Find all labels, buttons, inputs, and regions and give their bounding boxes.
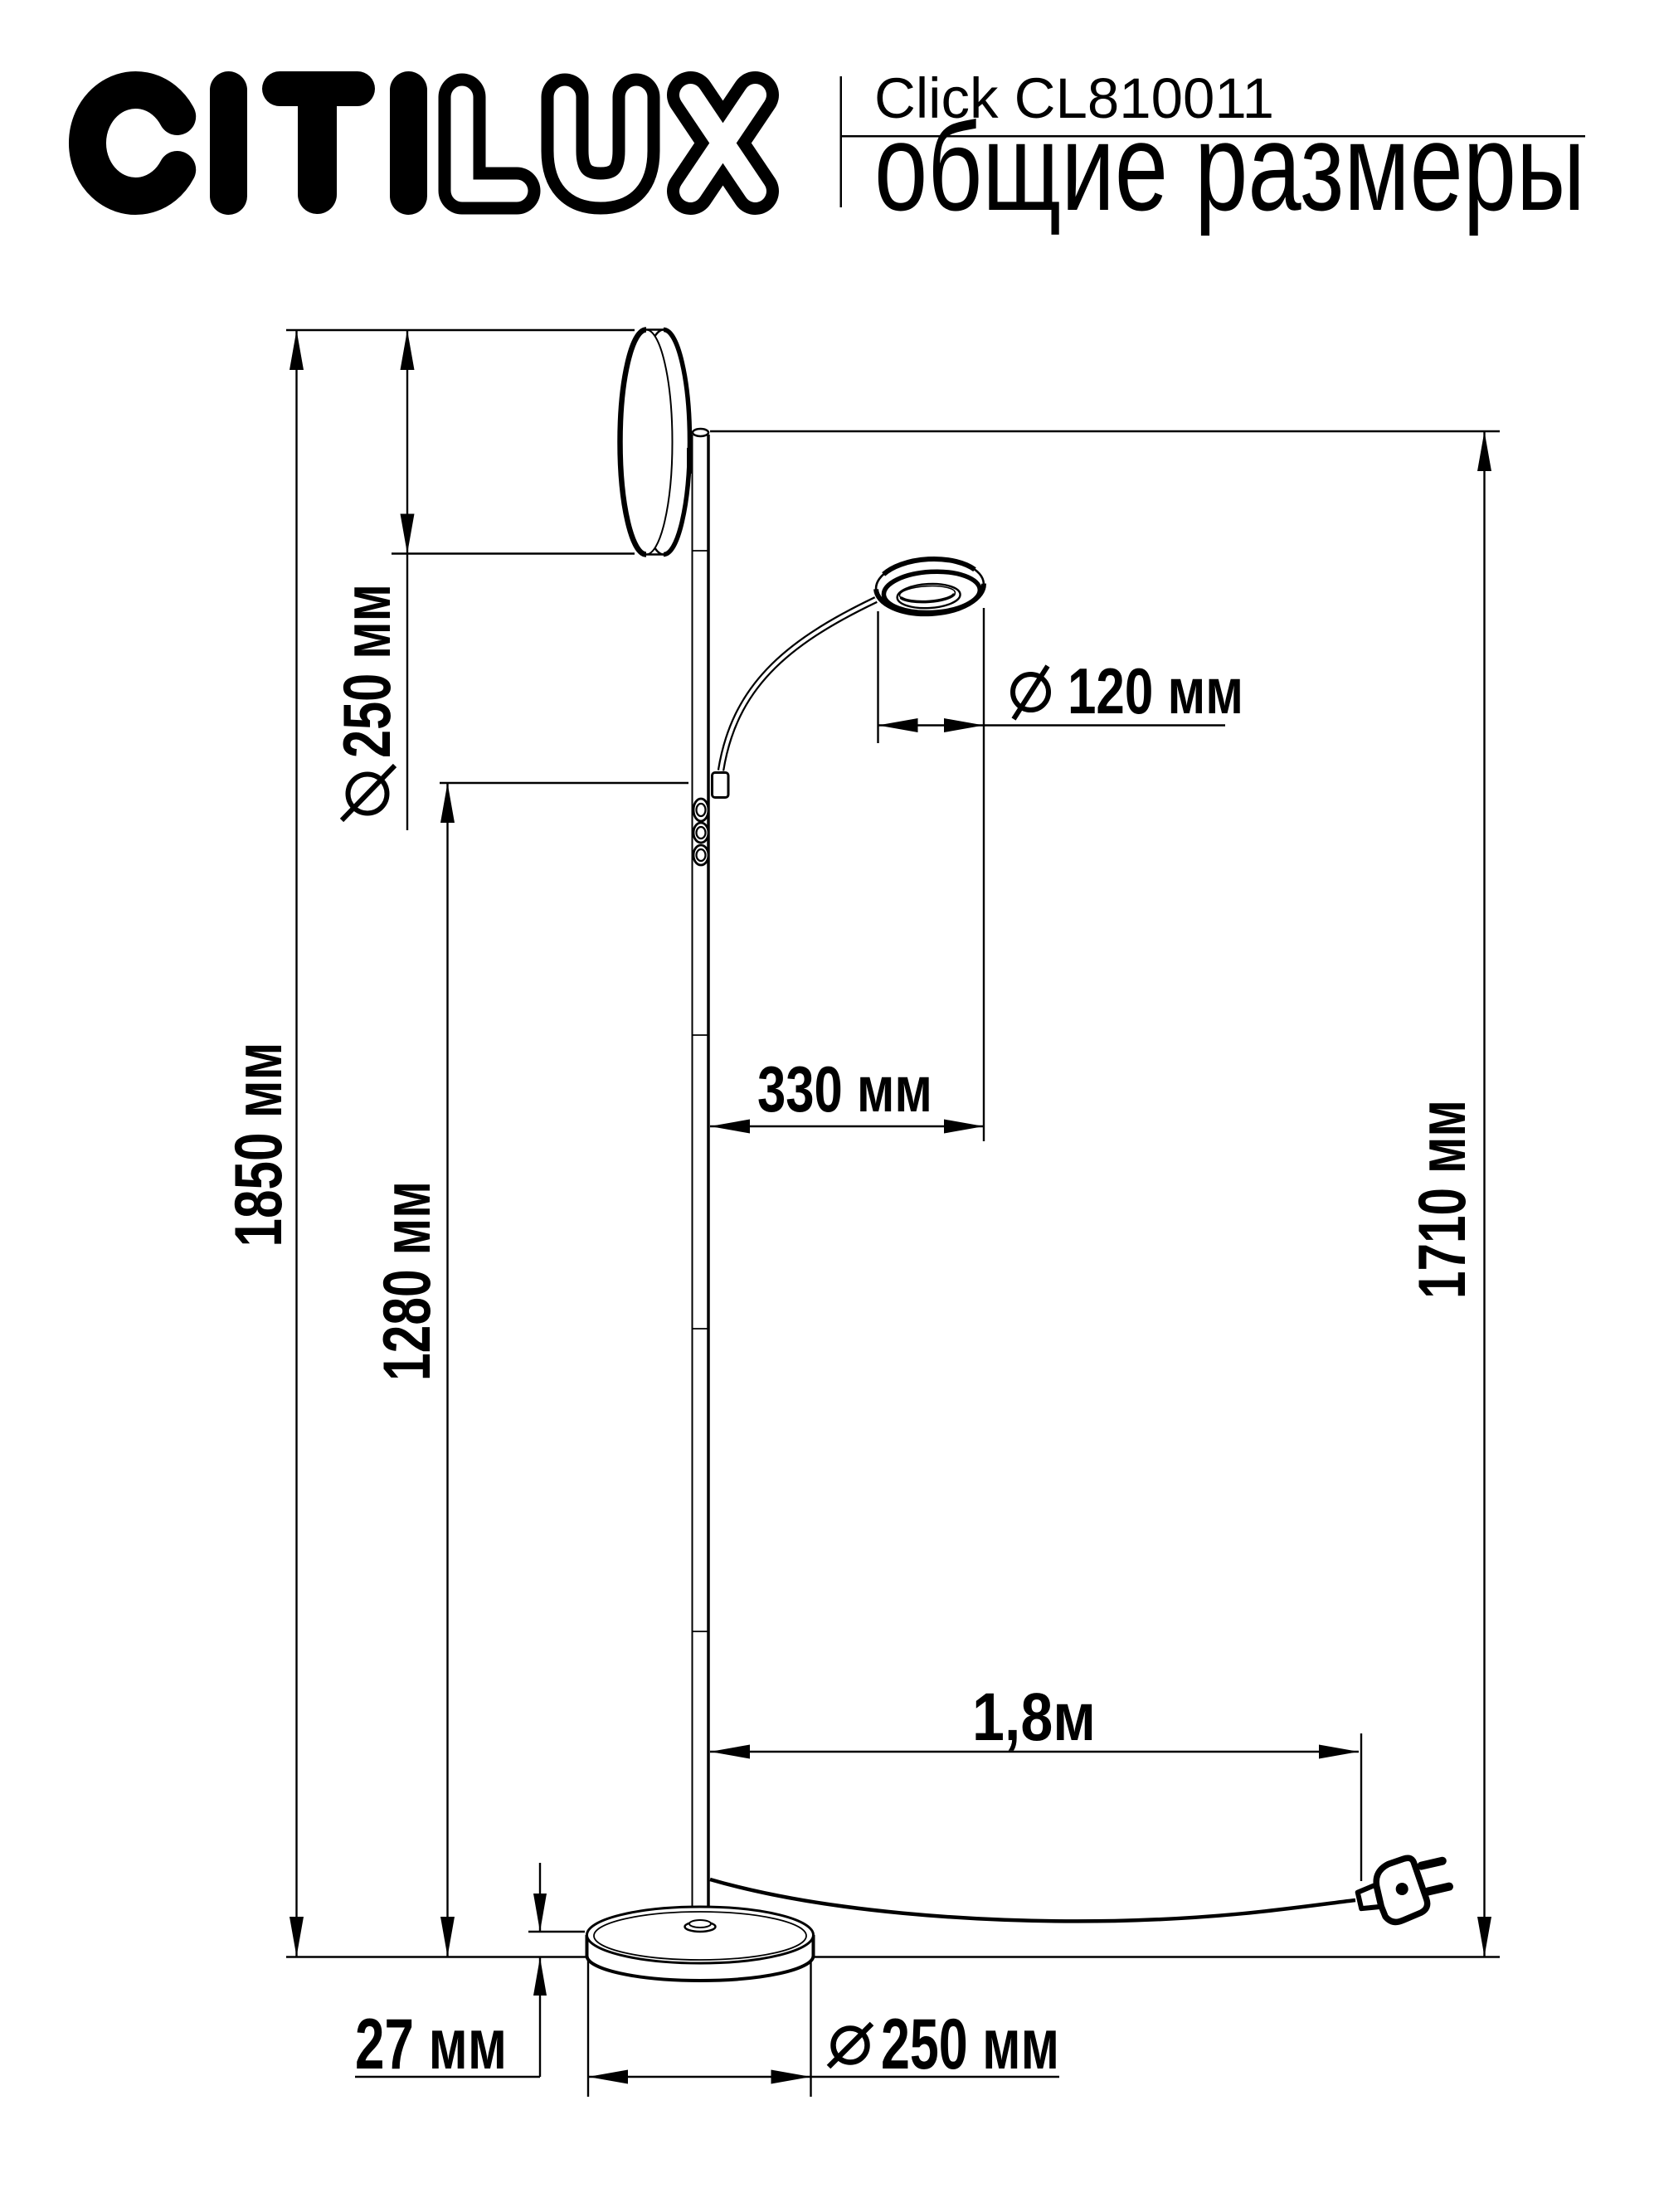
- svg-text:250 мм: 250 мм: [330, 584, 405, 758]
- svg-text:1850 мм: 1850 мм: [221, 1043, 296, 1247]
- svg-text:330 мм: 330 мм: [757, 1053, 932, 1125]
- svg-text:общие размеры: общие размеры: [874, 97, 1585, 236]
- svg-text:250 мм: 250 мм: [881, 2005, 1059, 2084]
- svg-text:1280 мм: 1280 мм: [370, 1181, 445, 1381]
- svg-text:1710 мм: 1710 мм: [1405, 1100, 1480, 1299]
- svg-text:120 мм: 120 мм: [1068, 654, 1243, 727]
- svg-text:1,8м: 1,8м: [972, 1680, 1096, 1755]
- svg-text:27 мм: 27 мм: [355, 2005, 507, 2084]
